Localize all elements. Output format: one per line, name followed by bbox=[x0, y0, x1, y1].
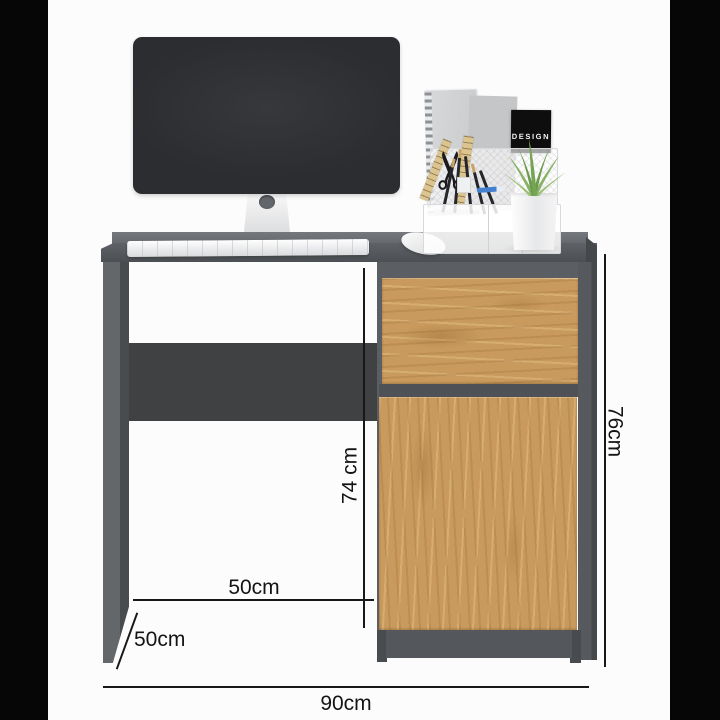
desk-back-panel bbox=[128, 343, 378, 421]
cabinet-plinth bbox=[386, 630, 572, 658]
succulent-plant bbox=[498, 134, 570, 198]
monitor-stand-cable-hole bbox=[259, 195, 275, 209]
left-frame-bar bbox=[0, 0, 48, 720]
product-image: DESIGN ✂ 90cm 76cm 74 cm 50cm 50cm bbox=[0, 0, 720, 720]
drawer-front bbox=[382, 278, 578, 384]
desk-left-leg bbox=[103, 260, 129, 663]
monitor bbox=[133, 37, 400, 194]
dimension-inner-height-label: 74 cm bbox=[340, 441, 361, 511]
dimension-inner-width-label: 50cm bbox=[214, 577, 294, 598]
cabinet-right-side-panel bbox=[578, 262, 597, 660]
desk-top-side-edge bbox=[586, 237, 597, 262]
keyboard bbox=[127, 239, 369, 257]
sharpener bbox=[457, 177, 471, 193]
cabinet-door bbox=[379, 397, 577, 630]
dimension-width-line bbox=[103, 686, 589, 688]
drawer-door-gap bbox=[379, 384, 578, 397]
right-frame-bar bbox=[670, 0, 720, 720]
dimension-inner-height-line bbox=[363, 268, 365, 628]
dimension-depth-label: 50cm bbox=[134, 629, 185, 650]
tray-divider bbox=[488, 205, 489, 253]
dimension-width-label: 90cm bbox=[306, 693, 386, 714]
dimension-height-label: 76cm bbox=[605, 397, 626, 467]
cabinet-top-rail bbox=[378, 262, 578, 279]
plant-pot bbox=[509, 193, 559, 250]
dimension-inner-width-line bbox=[133, 599, 374, 601]
